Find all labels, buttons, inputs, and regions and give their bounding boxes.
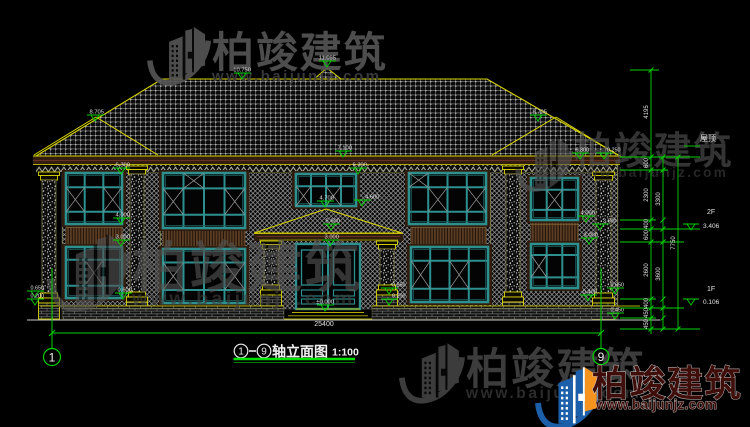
svg-text:9: 9: [261, 347, 267, 358]
svg-text:3.000: 3.000: [115, 235, 130, 241]
svg-text:4.000: 4.000: [115, 213, 130, 219]
svg-text:7.100: 7.100: [337, 146, 352, 152]
svg-text:轴立面图: 轴立面图: [272, 344, 328, 360]
svg-text:6.300: 6.300: [576, 148, 590, 154]
svg-text:450: 450: [644, 307, 650, 318]
svg-text:0.250: 0.250: [607, 148, 621, 154]
svg-text:600: 600: [644, 157, 650, 168]
svg-text:4.000: 4.000: [580, 211, 595, 217]
svg-text:1: 1: [238, 347, 244, 358]
svg-text:9: 9: [598, 350, 605, 364]
svg-text:3.000: 3.000: [324, 235, 339, 241]
svg-text:1: 1: [49, 351, 56, 365]
svg-text:0.650: 0.650: [31, 286, 45, 292]
svg-text:0.650: 0.650: [611, 283, 625, 289]
svg-text:10.750: 10.750: [233, 68, 251, 74]
svg-text:1:100: 1:100: [332, 347, 359, 359]
svg-text:4.700: 4.700: [319, 196, 334, 202]
svg-text:0.200: 0.200: [392, 294, 406, 300]
svg-text:400: 400: [644, 297, 650, 308]
svg-text:±0.000: ±0.000: [316, 300, 334, 306]
svg-text:4195: 4195: [644, 105, 650, 119]
svg-text:11.095: 11.095: [319, 56, 336, 62]
svg-text:5.600: 5.600: [325, 219, 340, 225]
svg-text:8.705: 8.705: [89, 110, 104, 116]
svg-text:2600: 2600: [644, 263, 650, 277]
svg-text:25400: 25400: [314, 321, 334, 328]
svg-text:3.000: 3.000: [583, 233, 598, 239]
svg-text:屋顶: 屋顶: [700, 134, 716, 143]
svg-text:7750: 7750: [671, 236, 677, 250]
svg-text:www.baijunjz.com: www.baijunjz.com: [595, 397, 717, 412]
svg-text:0.200: 0.200: [31, 294, 45, 300]
svg-text:6.300: 6.300: [115, 163, 130, 169]
svg-text:3.600: 3.600: [603, 219, 617, 225]
svg-text:600: 600: [644, 229, 650, 240]
svg-text:1F: 1F: [707, 286, 715, 293]
svg-text:0.650: 0.650: [392, 283, 406, 289]
svg-text:3300: 3300: [656, 192, 662, 206]
svg-text:0.106: 0.106: [703, 299, 720, 306]
svg-text:3.406: 3.406: [703, 223, 720, 230]
svg-text:8.705: 8.705: [532, 110, 547, 116]
svg-text:2300: 2300: [644, 188, 650, 202]
svg-text:450: 450: [644, 318, 650, 329]
svg-text:0.400: 0.400: [582, 290, 597, 296]
svg-text:4.600: 4.600: [365, 195, 380, 201]
svg-text:6.300: 6.300: [352, 163, 367, 169]
svg-text:0.600: 0.600: [117, 288, 132, 294]
svg-text:3600: 3600: [656, 267, 662, 281]
svg-text:2F: 2F: [707, 209, 715, 216]
svg-text:400: 400: [644, 218, 650, 229]
